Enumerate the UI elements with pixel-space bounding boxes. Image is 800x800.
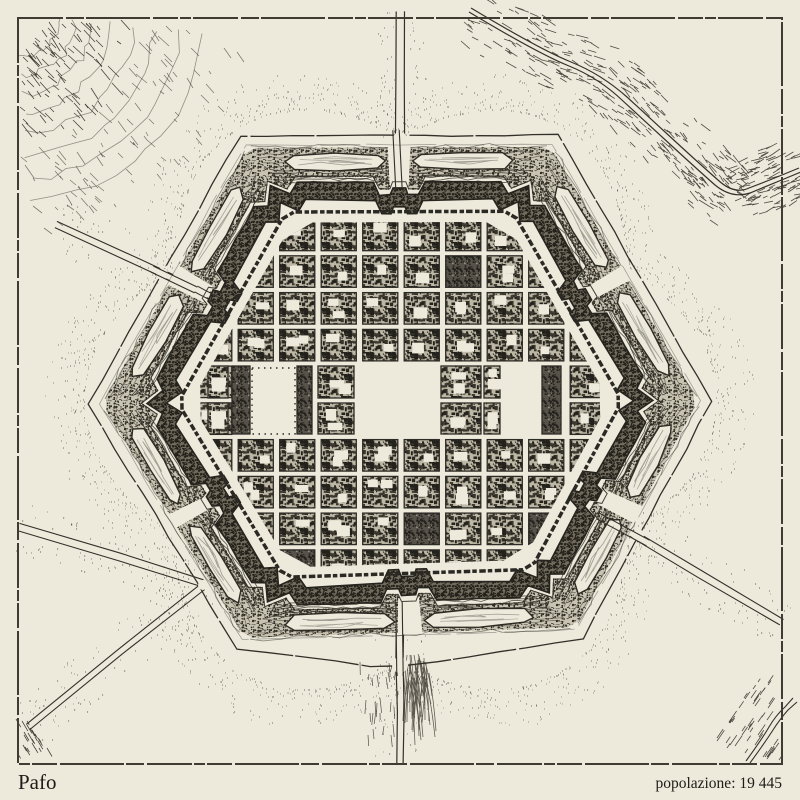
svg-text:popolazione: 19 445: popolazione: 19 445 bbox=[655, 775, 782, 792]
svg-text:Pafo: Pafo bbox=[18, 770, 57, 794]
